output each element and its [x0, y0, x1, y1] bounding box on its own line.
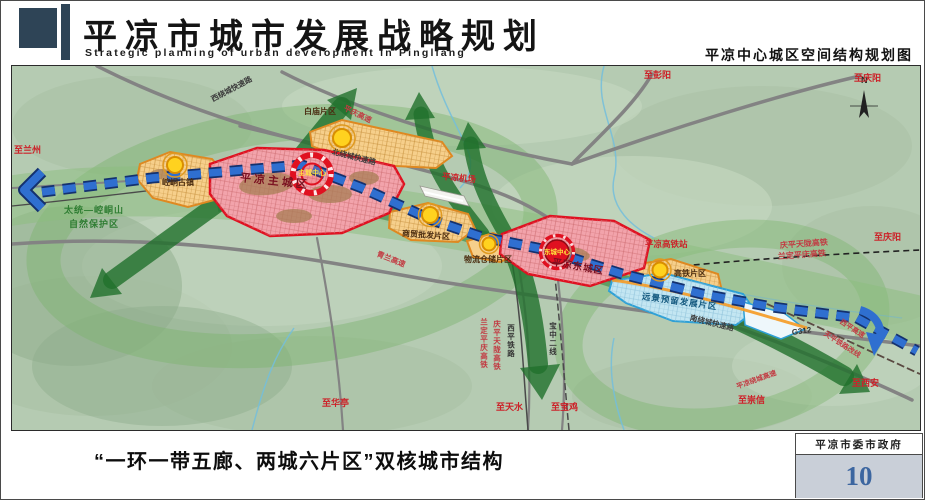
- dest-xian: 至西安: [852, 379, 879, 389]
- zone-baimiao: 白庙片区: [304, 108, 336, 117]
- rail-ldpq-hsr-south: 兰定平庆高铁: [480, 318, 488, 369]
- page-number: 10: [796, 455, 922, 498]
- dest-tianshui: 至天水: [496, 403, 523, 413]
- zone-wuliu: 物流仓储片区: [464, 256, 512, 265]
- zone-gaotie: 高铁片区: [674, 270, 706, 279]
- page-subtitle-en: Strategic planning of urban development …: [85, 47, 466, 59]
- credit-box: 平凉市委市政府 10: [795, 433, 923, 498]
- logo-mark: [19, 8, 57, 48]
- accent-bar: [61, 4, 70, 60]
- dest-lanzhou: 至兰州: [14, 146, 41, 156]
- zone-kongtong: 崆峒古镇: [162, 179, 194, 188]
- dest-pengyang: 至彭阳: [644, 71, 671, 81]
- dest-qingyang-east: 至庆阳: [874, 233, 901, 243]
- core-main-label: 主城中心: [290, 170, 334, 178]
- rail-baozhong-2: 宝中二线: [549, 322, 557, 356]
- dest-chongxin: 至崇信: [738, 396, 765, 406]
- dest-qingyang-top: 至庆阳: [854, 74, 881, 84]
- nature-reserve-line2: 自然保护区: [69, 219, 119, 229]
- dest-baoji: 至宝鸡: [551, 403, 578, 413]
- credit-text: 平凉市委市政府: [796, 434, 922, 455]
- planning-page: 平凉市城市发展战略规划 Strategic planning of urban …: [0, 0, 925, 500]
- rail-qptl-hsr-south: 庆平天陇高铁: [493, 320, 501, 371]
- rail-xiping: 西平铁路: [507, 324, 515, 358]
- structure-caption: “一环一带五廊、两城六片区”双核城市结构: [94, 445, 504, 474]
- nature-reserve-line1: 太统—崆峒山: [64, 205, 124, 215]
- nature-reserve-label: 太统—崆峒山 自然保护区: [64, 204, 124, 231]
- map-caption: 平凉中心城区空间结构规划图: [705, 45, 913, 65]
- hsr-station-label: 平凉高铁站: [645, 240, 688, 249]
- planning-map: N 至兰州 至彭阳 至庆阳 至庆阳 至西安 至崇信 至华亭 至天水 至宝鸡 西绕…: [11, 65, 921, 431]
- core-east-label: 东城中心: [537, 249, 577, 256]
- dest-huating: 至华亭: [322, 399, 349, 409]
